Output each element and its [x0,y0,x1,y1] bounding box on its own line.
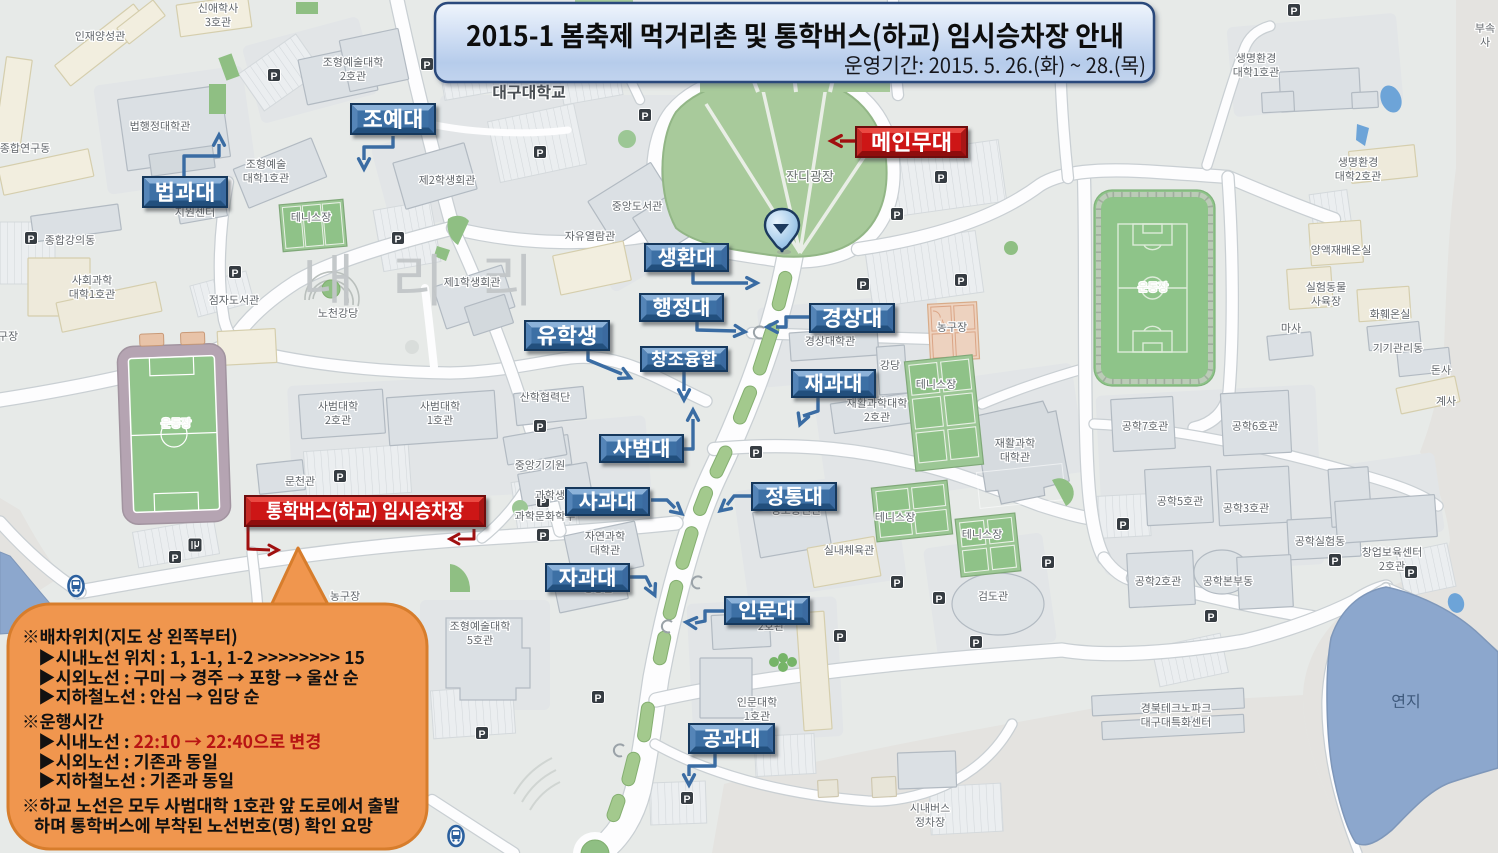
svg-text:사과대: 사과대 [579,486,637,516]
svg-text:종합강의동: 종합강의동 [45,232,96,248]
svg-text:실험동물사육장: 실험동물사육장 [1306,279,1346,309]
svg-text:P: P [752,448,759,460]
svg-text:실내체육관: 실내체육관 [824,542,875,558]
svg-text:제1학생회관: 제1학생회관 [444,274,501,290]
svg-text:P: P [1290,6,1297,18]
svg-text:공학5호관: 공학5호관 [1157,493,1204,509]
svg-text:시내버스정차장: 시내버스정차장 [910,800,950,830]
svg-text:유학생: 유학생 [537,318,598,350]
svg-text:재과대: 재과대 [805,368,863,398]
svg-text:2015-1 봄축제 먹거리촌 및 통학버스(하교) 임시승: 2015-1 봄축제 먹거리촌 및 통학버스(하교) 임시승차장 안내 [466,15,1124,55]
svg-text:P: P [1044,558,1051,570]
svg-text:구장: 구장 [0,328,18,344]
svg-text:하며 통학버스에 부착된 노선번호(명) 확인 요망: 하며 통학버스에 부착된 노선번호(명) 확인 요망 [34,813,373,838]
svg-text:테니스장: 테니스장 [916,376,956,392]
svg-text:행정대: 행정대 [653,292,711,322]
svg-text:강당: 강당 [880,357,900,373]
svg-text:P: P [594,693,601,705]
svg-text:P: P [536,148,543,160]
svg-text:잔디광장: 잔디광장 [786,166,834,185]
svg-text:P: P [893,210,900,222]
svg-text:공학본부동: 공학본부동 [1203,573,1254,589]
svg-text:공학7호관: 공학7호관 [1122,418,1169,434]
svg-text:문천관: 문천관 [285,473,315,489]
svg-text:노천강당: 노천강당 [318,305,358,321]
svg-text:P: P [478,729,485,741]
svg-text:P: P [1331,556,1338,568]
svg-text:사범대: 사범대 [613,433,671,463]
svg-text:정통대: 정통대 [765,481,823,511]
svg-text:화훼온실: 화훼온실 [1370,306,1410,322]
svg-text:자과대: 자과대 [559,562,617,592]
svg-text:P: P [394,234,401,246]
svg-text:P: P [893,578,900,590]
svg-text:운동장: 운동장 [161,415,191,431]
svg-text:운영기간: 2015. 5. 26.(화) ~ 28.(목): 운영기간: 2015. 5. 26.(화) ~ 28.(목) [844,50,1146,80]
svg-text:경북테크노파크대구대특화센터: 경북테크노파크대구대특화센터 [1141,700,1212,730]
svg-text:통학버스(하교) 임시승차장: 통학버스(하교) 임시승차장 [266,495,464,524]
svg-text:인재양성관: 인재양성관 [75,28,126,44]
svg-text:P: P [423,60,430,72]
svg-text:P: P [972,638,979,650]
svg-text:사회과학대학1호관: 사회과학대학1호관 [69,272,116,302]
svg-text:생환대: 생환대 [658,242,716,272]
svg-text:경상대: 경상대 [822,301,883,333]
svg-text:자연과학대학관: 자연과학대학관 [585,528,625,558]
svg-text:마사: 마사 [1281,320,1301,336]
svg-text:생명환경대학2호관: 생명환경대학2호관 [1335,154,1382,184]
svg-text:자유열람관: 자유열람관 [565,228,616,244]
svg-text:공학3호관: 공학3호관 [1223,500,1270,516]
svg-text:▶지하철노선 : 안심 → 임당 순: ▶지하철노선 : 안심 → 임당 순 [38,684,260,709]
svg-text:생명환경대학1호관: 생명환경대학1호관 [1233,50,1280,80]
svg-text:P: P [641,111,648,123]
svg-text:법과대: 법과대 [155,175,216,207]
svg-text:연지: 연지 [1391,688,1420,712]
svg-text:창조융합: 창조융합 [651,345,718,371]
svg-text:P: P [171,553,178,565]
svg-text:P: P [836,632,843,644]
svg-text:중앙도서관: 중앙도서관 [612,198,663,214]
svg-text:P: P [937,173,944,185]
svg-text:P: P [336,472,343,484]
svg-text:중앙기기원: 중앙기기원 [515,457,566,473]
svg-text:P: P [859,280,866,292]
svg-text:제2학생회관: 제2학생회관 [419,172,476,188]
svg-text:P: P [935,594,942,606]
svg-text:공과대: 공과대 [703,723,761,753]
svg-text:P: P [270,71,277,83]
svg-text:▶지하철노선 : 기존과 동일: ▶지하철노선 : 기존과 동일 [38,768,234,793]
svg-text:돈사: 돈사 [1431,362,1451,378]
svg-text:경상대학관: 경상대학관 [805,333,856,349]
svg-text:메인무대: 메인무대 [871,125,952,157]
svg-text:테니스장: 테니스장 [875,509,915,525]
svg-text:P: P [1407,568,1414,580]
svg-text:P: P [1119,520,1126,532]
svg-text:테니스장: 테니스장 [962,526,1002,542]
svg-text:P: P [536,422,543,434]
svg-text:법행정대학관: 법행정대학관 [130,118,191,134]
svg-text:계사: 계사 [1436,393,1456,409]
svg-text:검도관: 검도관 [978,588,1008,604]
svg-text:공학2호관: 공학2호관 [1135,573,1182,589]
svg-text:조형예술대학1호관: 조형예술대학1호관 [243,156,290,186]
svg-text:기기관리동: 기기관리동 [1373,340,1424,356]
svg-text:농구장: 농구장 [330,588,360,604]
svg-text:점자도서관: 점자도서관 [209,292,260,308]
svg-text:P: P [539,531,546,543]
svg-text:P: P [683,794,690,806]
svg-text:운동장: 운동장 [1138,279,1168,295]
svg-text:P: P [957,276,964,288]
svg-text:테니스장: 테니스장 [291,209,331,225]
svg-text:P: P [27,234,34,246]
svg-text:농구장: 농구장 [937,319,967,335]
svg-text:P: P [1207,612,1214,624]
svg-text:공학실험동: 공학실험동 [1295,533,1346,549]
svg-text:인문대: 인문대 [738,595,796,625]
svg-text:종합연구동: 종합연구동 [0,140,50,156]
svg-text:재활과학대학관: 재활과학대학관 [995,435,1035,465]
svg-text:조예대: 조예대 [363,102,424,134]
svg-text:산학협력단: 산학협력단 [520,389,571,405]
svg-text:P: P [231,268,238,280]
svg-text:양액재배온실: 양액재배온실 [1311,242,1372,258]
svg-text:공학6호관: 공학6호관 [1232,418,1279,434]
